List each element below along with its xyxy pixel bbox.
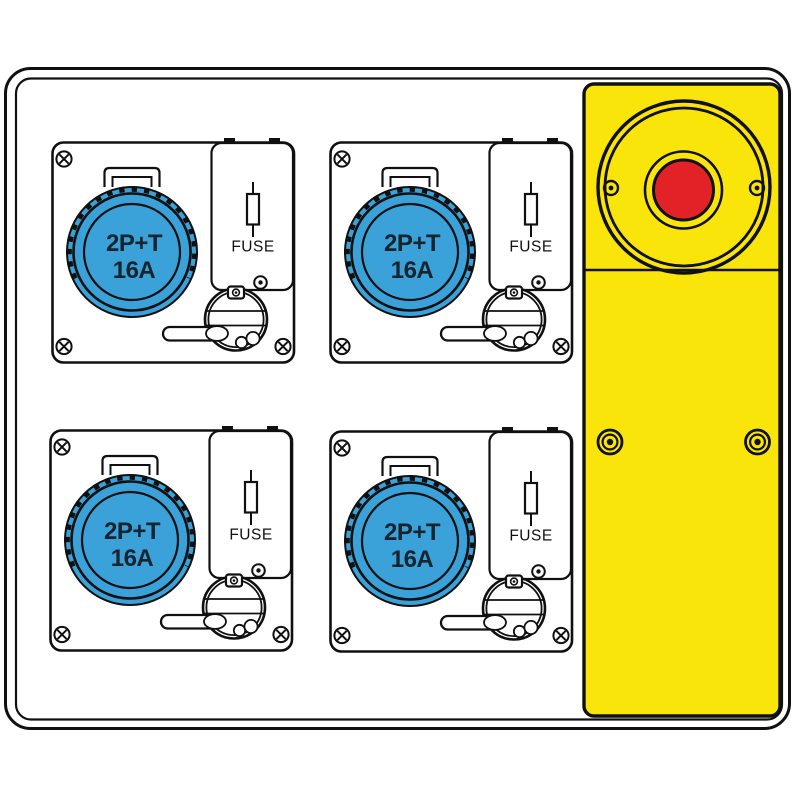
diagram-canvas: FUSE [0, 0, 800, 800]
corner-screw-icon [54, 627, 69, 642]
interlock-pin [244, 620, 257, 633]
fuse-panel-tab [222, 426, 233, 432]
socket-module-3: FUSE [51, 426, 293, 651]
socket-rating-line1: 2P+T [384, 519, 441, 546]
fuse-holder: FUSE [210, 426, 292, 578]
socket-module-4: FUSE [331, 427, 573, 652]
interlock-pin [524, 332, 537, 345]
interlock-pin [246, 332, 259, 345]
emergency-stop-panel [584, 84, 780, 716]
socket-rating-line1: 2P+T [384, 230, 441, 257]
interlock-screw-icon [532, 276, 545, 289]
corner-screw-icon [553, 339, 568, 354]
fuse-label: FUSE [509, 239, 552, 256]
socket-rating-line1: 2P+T [106, 230, 163, 257]
fuse-label: FUSE [231, 239, 274, 256]
socket-module-1: FUSE [53, 138, 295, 363]
fuse-panel-tab [267, 426, 278, 432]
fuse-panel-tab [547, 138, 558, 144]
socket-rating-line2: 16A [113, 257, 156, 284]
fuse-panel-tab [269, 138, 280, 144]
interlock-cam [484, 615, 506, 630]
interlock-latch-pin-dot [235, 291, 238, 294]
interlock-pin [236, 337, 247, 348]
socket-rating-line1: 2P+T [104, 518, 161, 545]
corner-screw-icon [56, 151, 71, 166]
fuse-panel-tab [502, 427, 513, 433]
corner-screw-icon [54, 439, 69, 454]
interlock-cam [206, 326, 228, 341]
interlock-screw-icon [252, 564, 265, 577]
interlock-pin [514, 626, 525, 637]
fuse-label: FUSE [229, 527, 272, 544]
corner-screw-icon [334, 440, 349, 455]
corner-screw-icon [56, 339, 71, 354]
fuse-holder: FUSE [490, 138, 572, 290]
fuse-panel-tab [547, 427, 558, 433]
interlock-pin [524, 621, 537, 634]
socket-module-2: FUSE [331, 138, 573, 363]
panel-screw-icon [746, 430, 770, 454]
corner-screw-icon [273, 627, 288, 642]
socket-rating-line2: 16A [111, 545, 154, 572]
interlock-latch-pin-dot [233, 579, 236, 582]
corner-screw-icon [553, 628, 568, 643]
socket-rating-line2: 16A [391, 546, 434, 573]
corner-screw-icon [334, 339, 349, 354]
socket-rating-line2: 16A [391, 257, 434, 284]
interlock-cam [204, 614, 226, 629]
corner-screw-icon [275, 339, 290, 354]
fuse-panel-tab [224, 138, 235, 144]
interlock-latch-pin-dot [513, 580, 516, 583]
fuse-panel-tab [502, 138, 513, 144]
panel-screw-icon [598, 430, 622, 454]
interlock-pin [234, 625, 245, 636]
interlock-screw-icon [254, 276, 267, 289]
emergency-stop-button [654, 160, 714, 220]
interlock-screw-icon [532, 565, 545, 578]
interlock-pin [514, 337, 525, 348]
corner-screw-icon [334, 628, 349, 643]
fuse-holder: FUSE [490, 427, 572, 579]
interlock-cam [484, 326, 506, 341]
interlock-latch-pin-dot [513, 291, 516, 294]
fuse-label: FUSE [509, 528, 552, 545]
corner-screw-icon [334, 151, 349, 166]
fuse-holder: FUSE [212, 138, 294, 290]
